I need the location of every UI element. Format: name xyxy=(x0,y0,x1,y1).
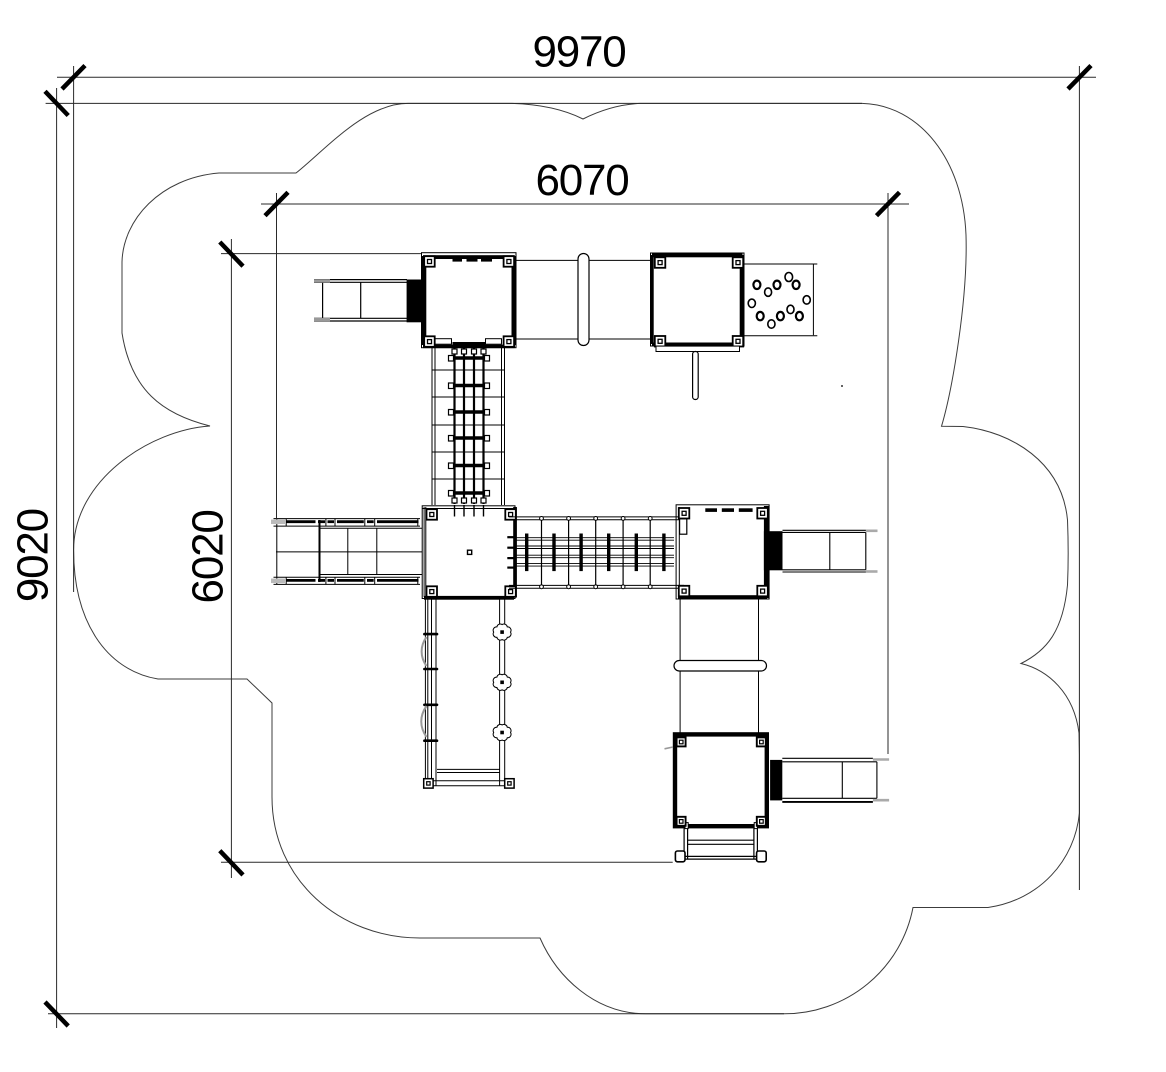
svg-text:9020: 9020 xyxy=(9,509,58,602)
svg-text:6070: 6070 xyxy=(535,156,628,205)
svg-text:6020: 6020 xyxy=(183,510,232,603)
svg-text:9970: 9970 xyxy=(532,28,625,77)
